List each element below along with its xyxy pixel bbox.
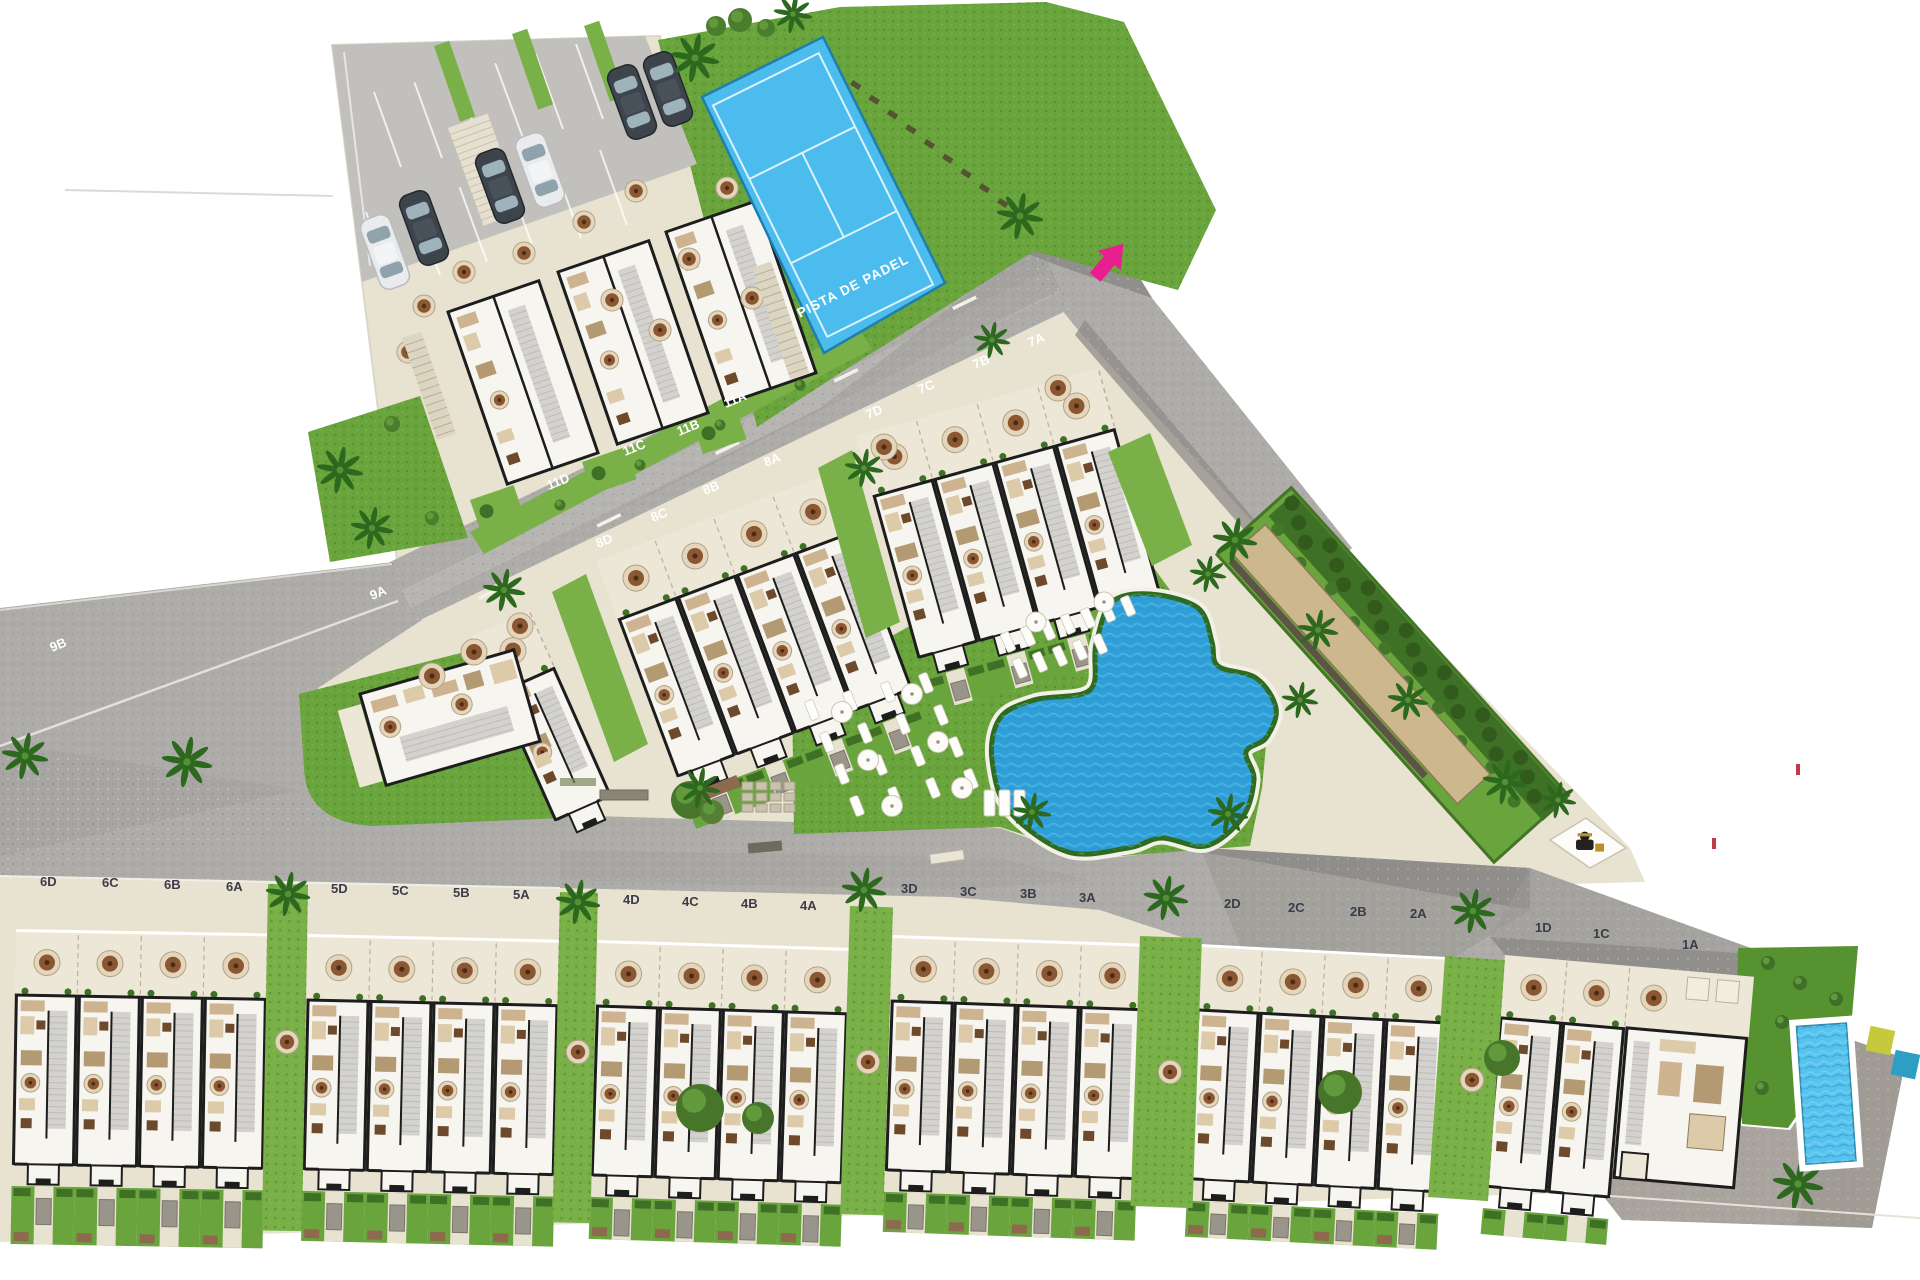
svg-text:6D: 6D — [40, 874, 57, 889]
svg-text:6A: 6A — [226, 879, 243, 894]
svg-text:4A: 4A — [800, 898, 817, 913]
svg-text:2B: 2B — [1350, 904, 1367, 919]
svg-text:3C: 3C — [960, 884, 977, 899]
svg-text:5D: 5D — [331, 881, 348, 896]
svg-text:1C: 1C — [1593, 926, 1610, 941]
svg-text:4D: 4D — [623, 892, 640, 907]
svg-text:1D: 1D — [1535, 920, 1552, 935]
svg-text:3A: 3A — [1079, 890, 1096, 905]
svg-text:2A: 2A — [1410, 906, 1427, 921]
svg-text:2C: 2C — [1288, 900, 1305, 915]
svg-text:4C: 4C — [682, 894, 699, 909]
svg-text:2D: 2D — [1224, 896, 1241, 911]
svg-text:5C: 5C — [392, 883, 409, 898]
svg-text:1A: 1A — [1682, 937, 1699, 952]
svg-text:6C: 6C — [102, 875, 119, 890]
svg-text:6B: 6B — [164, 877, 181, 892]
svg-text:3B: 3B — [1020, 886, 1037, 901]
svg-text:3D: 3D — [901, 881, 918, 896]
svg-text:4B: 4B — [741, 896, 758, 911]
svg-text:5A: 5A — [513, 887, 530, 902]
svg-text:5B: 5B — [453, 885, 470, 900]
